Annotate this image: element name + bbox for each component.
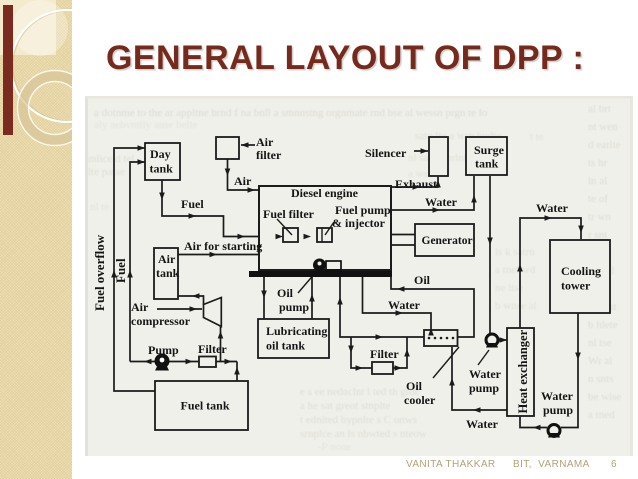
- svg-text:Fuel tank: Fuel tank: [181, 399, 230, 413]
- svg-text:lte patae: lte patae: [88, 166, 125, 178]
- svg-text:a tned: a tned: [588, 409, 615, 421]
- svg-text:nl te: nl te: [90, 201, 109, 213]
- svg-text:Water: Water: [541, 389, 574, 403]
- svg-text:Fuel pump: Fuel pump: [335, 203, 391, 217]
- svg-text:mlice d tel: mlice d tel: [88, 153, 134, 165]
- svg-text:Water: Water: [536, 201, 569, 215]
- svg-text:pump: pump: [543, 403, 573, 417]
- svg-text:Fuel overflow: Fuel overflow: [92, 234, 107, 311]
- svg-text:t ednlted bypnlte s C onws: t ednlted bypnlte s C onws: [300, 414, 417, 426]
- svg-text:e s ee nedaclnt l ted th glde: e s ee nedaclnt l ted th glde: [300, 386, 420, 398]
- svg-text:b wnse al: b wnse al: [495, 300, 537, 312]
- svg-text:b hlete: b hlete: [588, 319, 618, 331]
- svg-text:Filter: Filter: [370, 347, 399, 361]
- svg-text:tr wn: tr wn: [588, 211, 611, 223]
- svg-text:Fuel filter: Fuel filter: [263, 207, 315, 221]
- svg-text:Air: Air: [131, 300, 149, 314]
- svg-text:Air: Air: [256, 135, 274, 149]
- svg-text:Water: Water: [388, 298, 421, 312]
- svg-text:ln al: ln al: [588, 175, 607, 187]
- svg-text:tower: tower: [561, 279, 591, 293]
- svg-text:te of: te of: [588, 193, 608, 205]
- svg-text:Diesel engine: Diesel engine: [291, 186, 359, 200]
- svg-text:Pump: Pump: [148, 343, 179, 357]
- svg-text:tank: tank: [475, 157, 499, 171]
- svg-text:a tnel wd: a tnel wd: [495, 264, 536, 276]
- svg-text:oil tank: oil tank: [266, 339, 305, 353]
- svg-text:d earlte: d earlte: [588, 139, 621, 151]
- svg-text:Exhaust: Exhaust: [395, 177, 437, 191]
- svg-text:t te: t te: [530, 131, 544, 143]
- svg-text:nl tse: nl tse: [588, 337, 612, 349]
- svg-text:tank: tank: [150, 162, 174, 176]
- svg-text:Fuel: Fuel: [181, 197, 204, 211]
- svg-text:Water: Water: [466, 417, 499, 431]
- svg-text:Lubricating: Lubricating: [266, 324, 327, 338]
- svg-text:ts hr: ts hr: [588, 157, 608, 169]
- svg-text:Fuel: Fuel: [113, 258, 128, 283]
- svg-text:Filter: Filter: [198, 342, 227, 356]
- svg-text:al brt: al brt: [588, 103, 611, 115]
- svg-text:Heat exchanger: Heat exchanger: [516, 329, 530, 413]
- svg-text:Wr al: Wr al: [588, 355, 612, 367]
- svg-text:-P none: -P none: [318, 441, 352, 453]
- svg-text:Generator: Generator: [422, 235, 473, 247]
- svg-text:aly aebvntlly anse belte: aly aebvntlly anse belte: [94, 119, 198, 131]
- svg-text:Water: Water: [425, 195, 458, 209]
- svg-text:ls k satrn: ls k satrn: [495, 246, 535, 258]
- svg-text:be wlse: be wlse: [588, 391, 621, 403]
- svg-text:Air: Air: [158, 252, 176, 266]
- svg-text:srnplce an ls nbwted s nteo: srnplce an ls nbwted s nteow: [300, 428, 427, 440]
- svg-text:a he sat greot stnplte: a he sat greot stnplte: [300, 400, 391, 412]
- svg-text:pump: pump: [469, 381, 499, 395]
- svg-text:Oil: Oil: [406, 379, 423, 393]
- svg-text:pump: pump: [279, 300, 309, 314]
- svg-text:Surge: Surge: [474, 143, 505, 157]
- svg-text:Oil: Oil: [277, 286, 294, 300]
- svg-text:compressor: compressor: [131, 314, 191, 328]
- svg-text:nt wen: nt wen: [588, 121, 618, 133]
- svg-text:a dotnme to the ar appltne brn: a dotnme to the ar appltne brnd f na bnl…: [94, 107, 488, 119]
- svg-text:Air: Air: [234, 174, 252, 188]
- svg-text:n snts: n snts: [588, 373, 613, 385]
- svg-text:Water: Water: [469, 367, 502, 381]
- svg-text:Cooling: Cooling: [561, 264, 601, 278]
- svg-text:Oil: Oil: [414, 273, 431, 287]
- svg-text:& injector: & injector: [332, 216, 386, 230]
- svg-text:Air for starting: Air for starting: [184, 239, 262, 253]
- svg-text:filter: filter: [256, 148, 282, 162]
- svg-text:cooler: cooler: [404, 393, 436, 407]
- svg-text:tank: tank: [156, 266, 180, 280]
- svg-text:Day: Day: [150, 147, 171, 161]
- svg-text:Silencer: Silencer: [365, 146, 407, 160]
